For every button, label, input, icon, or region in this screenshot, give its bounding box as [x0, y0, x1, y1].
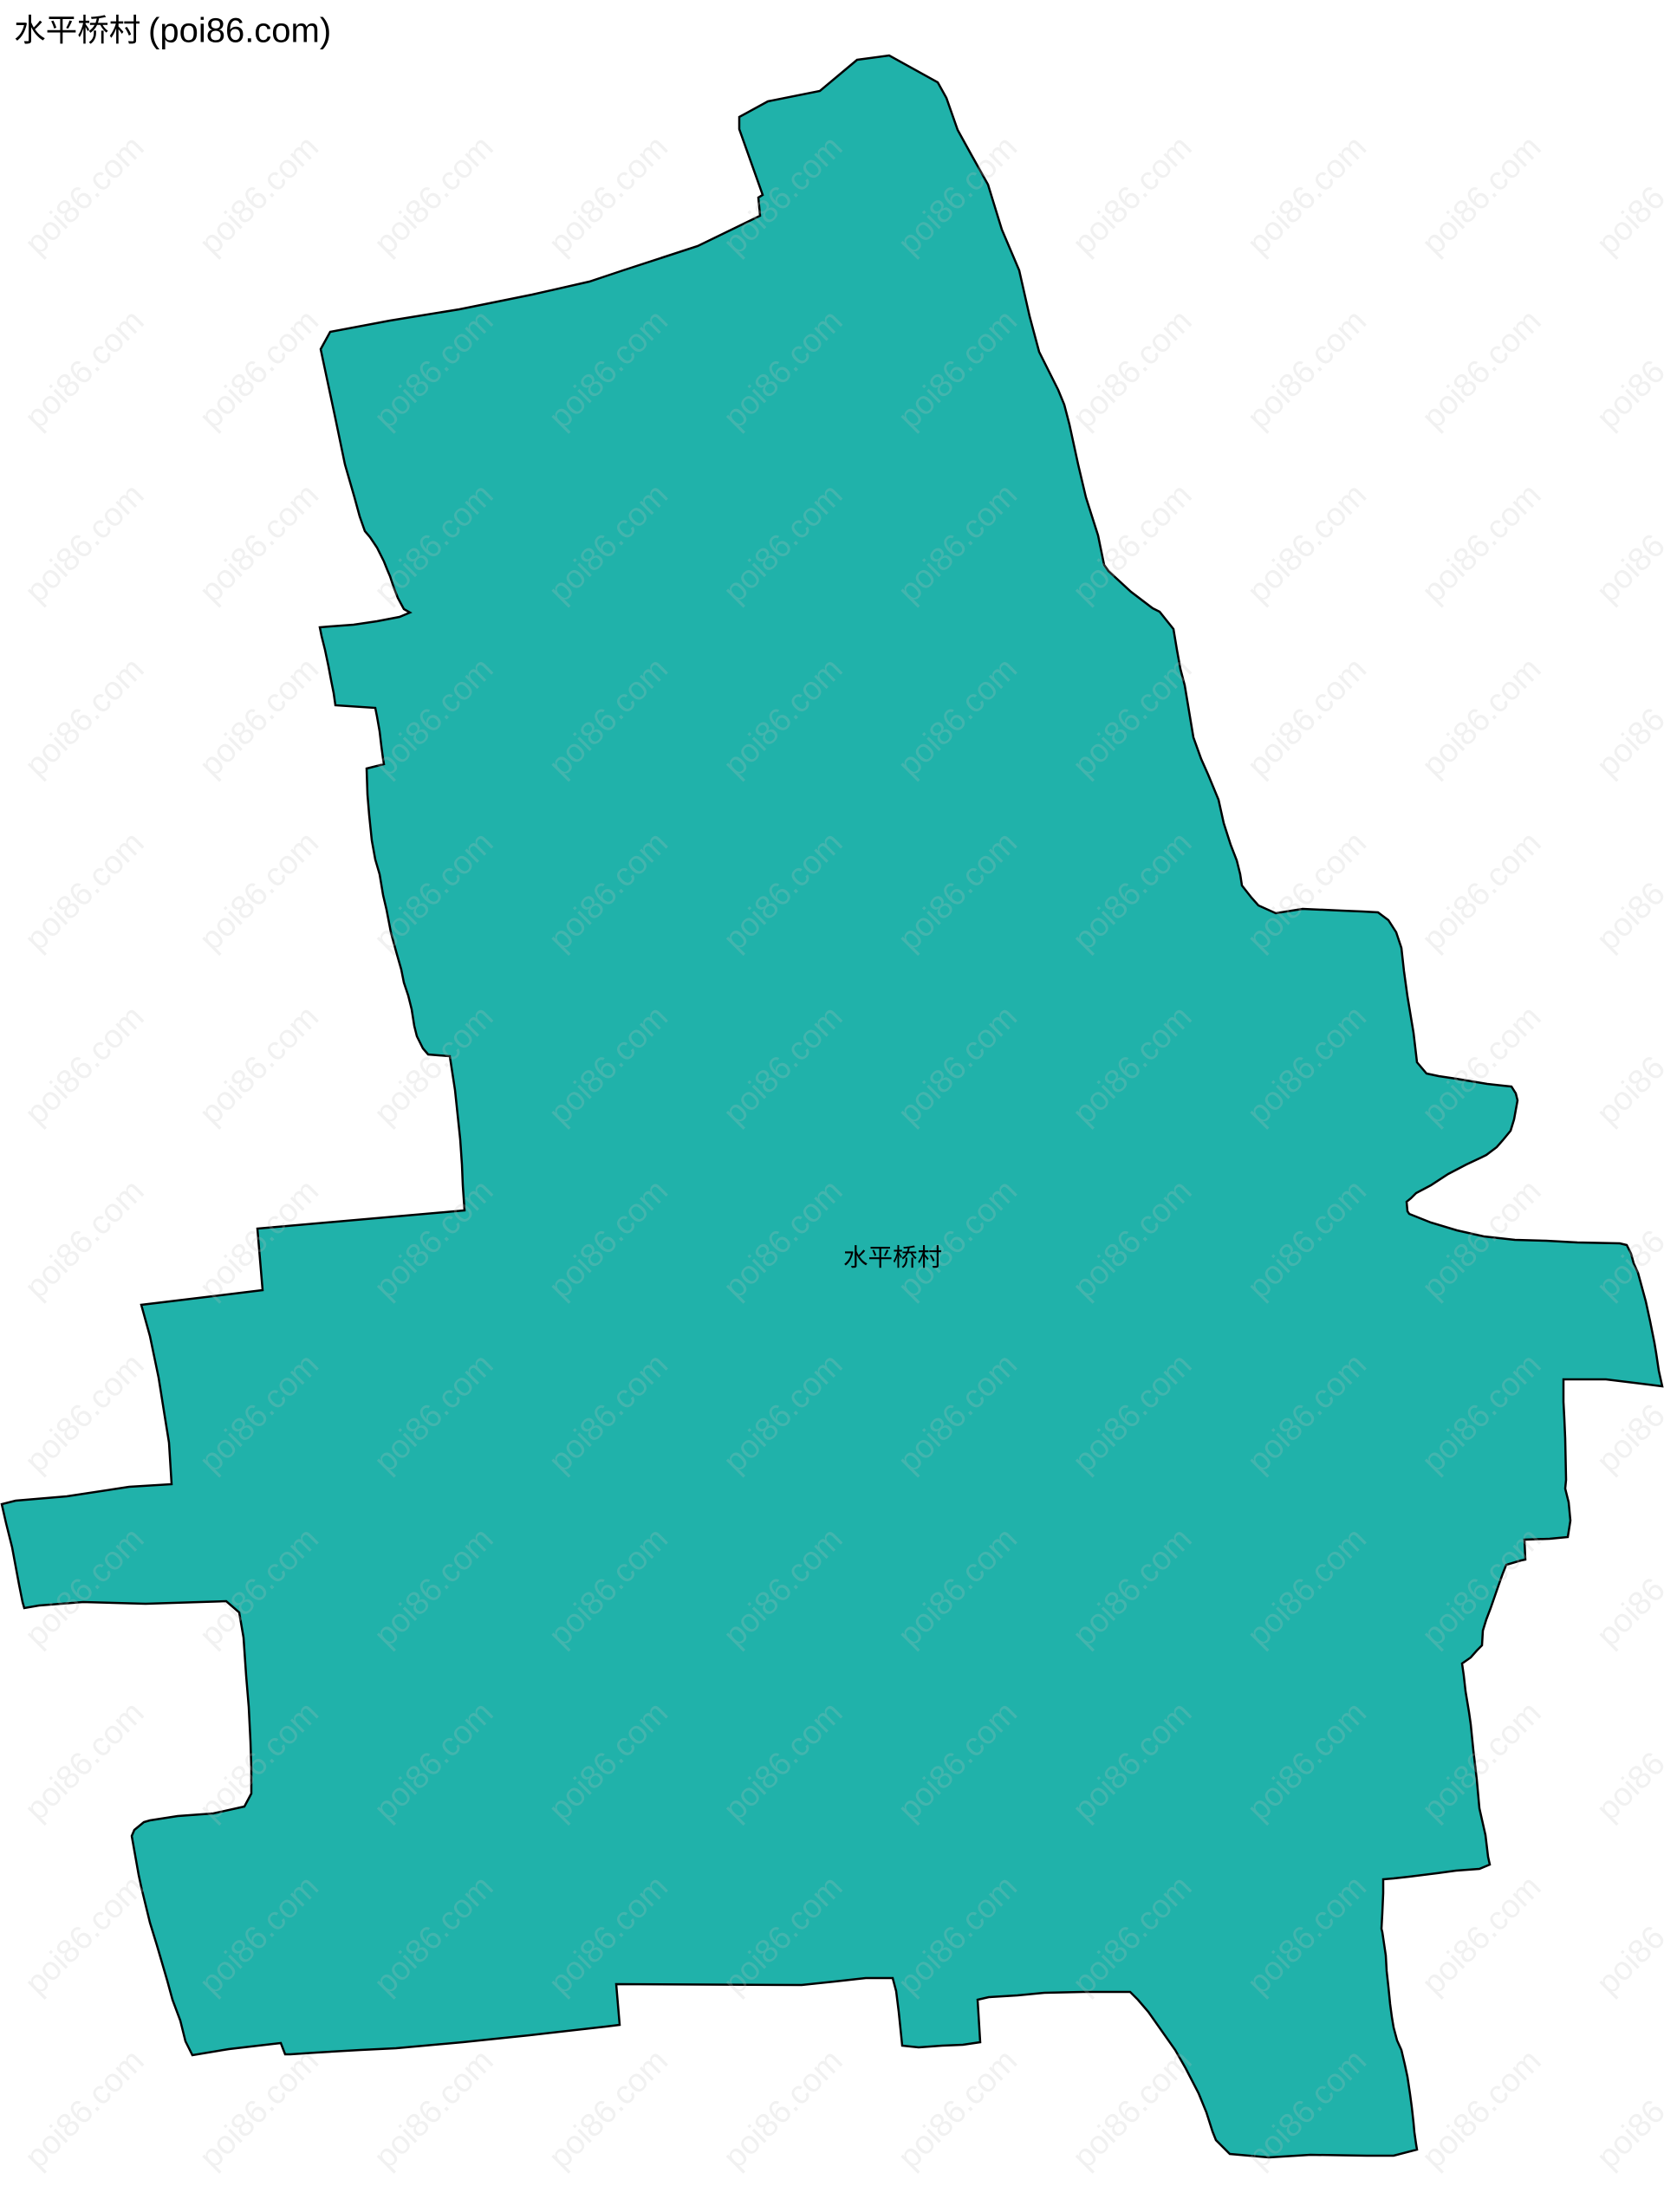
svg-text:(poi86.com): (poi86.com) — [148, 11, 331, 49]
